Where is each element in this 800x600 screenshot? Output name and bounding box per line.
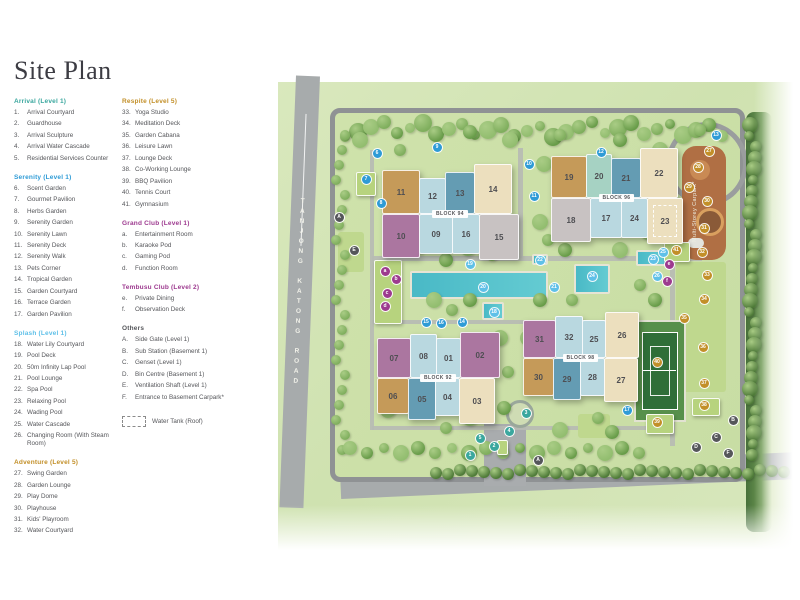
legend-item-label: Garden Pavilion (27, 311, 120, 319)
tree (493, 117, 509, 133)
map-marker-39: 39 (653, 418, 662, 427)
legend-item: C.Genset (Level 1) (122, 359, 250, 367)
block-wing-19: 19 (551, 156, 587, 198)
tree (447, 443, 457, 453)
tree (463, 125, 477, 139)
legend-item-label: Leisure Lawn (135, 143, 250, 151)
legend-section-title: Tembusu Club (Level 2) (122, 284, 250, 291)
legend-item-label: Serenity Deck (27, 242, 120, 250)
tree (393, 445, 409, 461)
legend-item-key: 19. (14, 352, 27, 360)
tree (562, 468, 574, 480)
legend-section-title: Grand Club (Level 1) (122, 220, 250, 227)
tree (566, 294, 578, 306)
legend-item-label: Wading Pool (27, 409, 120, 417)
legend-item-label: Pets Corner (27, 265, 120, 273)
legend-item-key: 9. (14, 219, 27, 227)
legend-item-key: 11. (14, 242, 27, 250)
tree (331, 295, 341, 305)
tree (334, 160, 344, 170)
legend-item-label: Relaxing Pool (27, 398, 120, 406)
tree (340, 250, 350, 260)
legend-item-key: 40. (122, 189, 135, 197)
block-wing-05: 05 (408, 378, 436, 420)
block-wing-20: 20 (586, 154, 612, 198)
tree (343, 441, 357, 455)
legend-section-title: Adventure (Level 5) (14, 459, 120, 466)
block-wing-06: 06 (377, 378, 409, 414)
block-wing-11: 11 (382, 170, 420, 214)
map-marker-30: 30 (703, 197, 712, 206)
legend-item-key: 12. (14, 253, 27, 261)
legend-item-label: Lounge Deck (135, 155, 250, 163)
tree (337, 145, 347, 155)
tree (340, 430, 350, 440)
tree (586, 465, 598, 477)
legend-item-key: 30. (14, 505, 27, 513)
legend-item-key: 41. (122, 201, 135, 209)
legend-section: Grand Club (Level 1)a.Entertainment Room… (122, 220, 250, 273)
legend-item: D.Bin Centre (Basement 1) (122, 371, 250, 379)
legend-item: 25.Water Cascade (14, 421, 120, 429)
map-marker-5: 5 (476, 434, 485, 443)
legend-item-key: 32. (14, 527, 27, 535)
legend-item-key: 24. (14, 409, 27, 417)
map-marker-17: 17 (623, 406, 632, 415)
tree (334, 220, 344, 230)
block-wing-29: 29 (553, 358, 581, 400)
block-label: BLOCK 98 (563, 354, 599, 362)
tree (536, 156, 552, 172)
legend-column-2: Respite (Level 5)33.Yoga Studio34.Medita… (122, 98, 250, 427)
map-marker-D: D (692, 443, 701, 452)
block-wing-27: 27 (604, 358, 638, 402)
legend-item-label: Residential Services Counter (27, 155, 120, 163)
tree (744, 395, 754, 405)
legend-item: 17.Garden Pavilion (14, 311, 120, 319)
legend-item: 19.Pool Deck (14, 352, 120, 360)
tree (535, 121, 545, 131)
tree (682, 468, 694, 480)
tree (340, 310, 350, 320)
road-tanjong-katong-label: TANJONG KATONG ROAD (292, 198, 306, 388)
tree (331, 235, 341, 245)
map-marker-C: C (712, 433, 721, 442)
tree (331, 355, 341, 365)
tree (552, 422, 568, 438)
legend-item-label: Ventilation Shaft (Level 1) (135, 382, 250, 390)
legend-item: e.Private Dining (122, 295, 250, 303)
legend-section: Arrival (Level 1)1.Arrival Courtyard2.Gu… (14, 98, 120, 163)
map-marker-A: A (335, 213, 344, 222)
block-wing-08: 08 (410, 334, 437, 378)
tree (646, 465, 658, 477)
tree (637, 127, 651, 141)
legend-item-label: Co-Working Lounge (135, 166, 250, 174)
legend-item: b.Karaoke Pod (122, 242, 250, 250)
block-wing-07: 07 (377, 338, 411, 378)
tree (340, 370, 350, 380)
legend-item: 5.Residential Services Counter (14, 155, 120, 163)
tree (748, 263, 758, 273)
legend-item-label: Water Lily Courtyard (27, 341, 120, 349)
legend-section: Adventure (Level 5)27.Swing Garden28.Gar… (14, 459, 120, 535)
legend-item-key: 26. (14, 432, 27, 448)
legend-item: 29.Play Dome (14, 493, 120, 501)
legend-item-label: Gaming Pod (135, 253, 250, 261)
legend-item-label: Gymnasium (135, 201, 250, 209)
legend-item-key: a. (122, 231, 135, 239)
legend-item-label: Gourmet Pavilion (27, 196, 120, 204)
legend-item-key: 1. (14, 109, 27, 117)
water-tank-note: Water Tank (Roof) (122, 416, 250, 427)
legend-item-key: 31. (14, 516, 27, 524)
legend-item-key: 8. (14, 208, 27, 216)
tree (670, 467, 682, 479)
legend-item-label: Swing Garden (27, 470, 120, 478)
legend-item-label: Playhouse (27, 505, 120, 513)
map-marker-7: 7 (362, 175, 371, 184)
map-marker-41: 41 (672, 246, 681, 255)
block-wing-23: 23 (647, 198, 683, 244)
legend-item-key: F. (122, 394, 135, 402)
legend-item: 10.Serenity Lawn (14, 231, 120, 239)
legend-item-key: C. (122, 359, 135, 367)
legend-item-key: B. (122, 348, 135, 356)
tree (334, 340, 344, 350)
tree (550, 467, 562, 479)
block-wing-22: 22 (640, 148, 678, 198)
tennis-court (634, 320, 686, 422)
legend-item-key: 13. (14, 265, 27, 273)
legend-item-key: b. (122, 242, 135, 250)
tree (502, 366, 514, 378)
legend-item-key: f. (122, 306, 135, 314)
tree (478, 466, 490, 478)
block-wing-17: 17 (590, 198, 622, 238)
map-marker-35: 35 (680, 314, 689, 323)
legend-section: Tembusu Club (Level 2)e.Private Diningf.… (122, 284, 250, 314)
legend-item: 3.Arrival Sculpture (14, 132, 120, 140)
tree (442, 122, 456, 136)
block-label: BLOCK 94 (432, 210, 468, 218)
legend-item-label: Terrace Garden (27, 299, 120, 307)
legend-item-key: 35. (122, 132, 135, 140)
map-marker-11: 11 (530, 192, 539, 201)
tree (446, 304, 458, 316)
tree (634, 279, 646, 291)
road-tanjong-katong: TANJONG KATONG ROAD (279, 76, 320, 509)
legend-item: 26.Changing Room (With Steam Room) (14, 432, 120, 448)
legend-item-label: Side Gate (Level 1) (135, 336, 250, 344)
legend-item: 31.Kids' Playroom (14, 516, 120, 524)
legend-item-key: e. (122, 295, 135, 303)
tree (744, 307, 754, 317)
building-cluster: 3132252630292827BLOCK 98 (523, 312, 638, 402)
map-marker-e: e (665, 260, 674, 269)
tennis-court-lines (650, 346, 670, 396)
site-plan-page: Site Plan Arrival (Level 1)1.Arrival Cou… (0, 0, 800, 600)
legend-item-key: 16. (14, 299, 27, 307)
building-cluster: 0708010206050403BLOCK 92 (377, 332, 499, 424)
legend-item: B.Sub Station (Basement 1) (122, 348, 250, 356)
tree (718, 466, 730, 478)
map-marker-10: 10 (525, 160, 534, 169)
page-title: Site Plan (14, 56, 112, 86)
map-marker-13: 13 (712, 131, 721, 140)
tree (497, 401, 511, 415)
map-marker-24: 24 (588, 272, 597, 281)
tree (490, 467, 502, 479)
legend-item-key: 37. (122, 155, 135, 163)
tree (337, 385, 347, 395)
map-marker-31: 31 (700, 224, 709, 233)
tree (547, 441, 561, 455)
tree (651, 123, 663, 135)
legend-item-label: Observation Deck (135, 306, 250, 314)
legend-item: 39.BBQ Pavilion (122, 178, 250, 186)
legend-item: 34.Meditation Deck (122, 120, 250, 128)
block-wing-18: 18 (551, 198, 591, 242)
map-marker-2: 2 (490, 442, 499, 451)
legend-item-key: 23. (14, 398, 27, 406)
tree (340, 190, 350, 200)
legend-item-label: Water Courtyard (27, 527, 120, 535)
tree (538, 466, 550, 478)
map-marker-38: 38 (700, 401, 709, 410)
legend-section: Serenity (Level 1)6.Scent Garden7.Gourme… (14, 174, 120, 319)
block-wing-32: 32 (555, 316, 583, 358)
legend-item: E.Ventilation Shaft (Level 1) (122, 382, 250, 390)
legend-item-label: Guardhouse (27, 120, 120, 128)
legend-item: 33.Yoga Studio (122, 109, 250, 117)
legend-item-label: Arrival Water Cascade (27, 143, 120, 151)
water-tank-outline (653, 205, 677, 237)
legend-item: 24.Wading Pool (14, 409, 120, 417)
site-plan-map: TANJONG KATONG ROAD JALAN TEMBUSU (278, 82, 800, 560)
map-marker-F: F (724, 449, 733, 458)
block-wing-12: 12 (419, 178, 446, 214)
legend-item: 14.Tropical Garden (14, 276, 120, 284)
legend-item: d.Function Room (122, 265, 250, 273)
legend-item: 13.Pets Corner (14, 265, 120, 273)
tree (337, 325, 347, 335)
tree (574, 464, 586, 476)
map-marker-c: c (383, 289, 392, 298)
legend-section: OthersA.Side Gate (Level 1)B.Sub Station… (122, 325, 250, 401)
legend-item-label: Karaoke Pod (135, 242, 250, 250)
legend-item: 22.Spa Pool (14, 386, 120, 394)
legend-item-label: Arrival Sculpture (27, 132, 120, 140)
legend-item-key: E. (122, 382, 135, 390)
legend-item-label: Bin Centre (Basement 1) (135, 371, 250, 379)
map-marker-4: 4 (505, 427, 514, 436)
map-marker-14: 14 (458, 318, 467, 327)
tree (748, 439, 758, 449)
legend-column-1: Arrival (Level 1)1.Arrival Courtyard2.Gu… (14, 98, 120, 546)
legend-item-key: A. (122, 336, 135, 344)
legend-item: 41.Gymnasium (122, 201, 250, 209)
legend-item-label: Entrance to Basement Carpark* (135, 394, 250, 402)
tree (558, 243, 572, 257)
edge-fade-bottom (278, 505, 800, 561)
map-marker-36: 36 (699, 343, 708, 352)
tree (610, 467, 622, 479)
map-marker-32: 32 (698, 248, 707, 257)
tree (754, 464, 766, 476)
tree (352, 132, 368, 148)
building-cluster: 1112131410091615BLOCK 94 (382, 164, 518, 260)
legend-item: f.Observation Deck (122, 306, 250, 314)
tree (586, 116, 598, 128)
legend-item-label: Sub Station (Basement 1) (135, 348, 250, 356)
map-marker-26: 26 (653, 272, 662, 281)
block-wing-25: 25 (582, 320, 606, 358)
legend-section-title: Arrival (Level 1) (14, 98, 120, 105)
tree (391, 127, 403, 139)
map-marker-12: 12 (597, 148, 606, 157)
tree (748, 175, 758, 185)
map-marker-19: 19 (466, 260, 475, 269)
tree (394, 144, 406, 156)
tree (746, 449, 758, 461)
block-wing-31: 31 (523, 320, 556, 358)
block-wing-24: 24 (621, 198, 648, 238)
legend-item-label: 50m Infinity Lap Pool (27, 364, 120, 372)
legend-item: c.Gaming Pod (122, 253, 250, 261)
legend-item-label: Private Dining (135, 295, 250, 303)
tree (466, 465, 478, 477)
legend-item: 40.Tennis Court (122, 189, 250, 197)
legend-item-label: Function Room (135, 265, 250, 273)
map-marker-34: 34 (700, 295, 709, 304)
map-marker-9: 9 (433, 143, 442, 152)
legend-item: 8.Herbs Garden (14, 208, 120, 216)
legend-item-key: 3. (14, 132, 27, 140)
tree (521, 125, 533, 137)
tree (730, 467, 742, 479)
tree (377, 115, 391, 129)
legend-item: 16.Terrace Garden (14, 299, 120, 307)
tree (615, 441, 629, 455)
tree (622, 468, 634, 480)
legend-item-key: 39. (122, 178, 135, 186)
legend-item: 38.Co-Working Lounge (122, 166, 250, 174)
legend-item: 32.Water Courtyard (14, 527, 120, 535)
legend-item: 9.Serenity Garden (14, 219, 120, 227)
tree (411, 441, 425, 455)
tree (694, 464, 706, 476)
map-marker-8: 8 (377, 199, 386, 208)
tree (744, 219, 754, 229)
legend-item: 12.Serenity Walk (14, 253, 120, 261)
tree (340, 130, 350, 140)
legend-item-key: 17. (14, 311, 27, 319)
map-marker-18: 18 (490, 308, 499, 317)
legend-item-label: Garden Lounge (27, 482, 120, 490)
legend-item-label: Tropical Garden (27, 276, 120, 284)
tree (334, 280, 344, 290)
legend-item-key: 28. (14, 482, 27, 490)
water-tank-label: Water Tank (Roof) (152, 418, 203, 425)
block-wing-16: 16 (452, 214, 480, 254)
legend-item: 36.Leisure Lawn (122, 143, 250, 151)
legend-item-key: 18. (14, 341, 27, 349)
legend-item: 21.Pool Lounge (14, 375, 120, 383)
legend-section-title: Others (122, 325, 250, 332)
map-marker-28: 28 (694, 163, 703, 172)
legend-item-key: 6. (14, 185, 27, 193)
legend-item: 2.Guardhouse (14, 120, 120, 128)
tree (658, 466, 670, 478)
block-label: BLOCK 92 (420, 374, 456, 382)
tree (334, 400, 344, 410)
tree (533, 293, 547, 307)
tree (426, 292, 442, 308)
tree (502, 132, 518, 148)
block-wing-09: 09 (419, 214, 453, 254)
block-wing-01: 01 (436, 338, 461, 378)
tree (379, 443, 389, 453)
legend-item-key: 21. (14, 375, 27, 383)
legend-item: A.Side Gate (Level 1) (122, 336, 250, 344)
legend-item: 15.Garden Courtyard (14, 288, 120, 296)
swing-garden (696, 208, 724, 236)
legend-item-key: 10. (14, 231, 27, 239)
map-marker-23: 23 (649, 255, 658, 264)
legend-item-label: Tennis Court (135, 189, 250, 197)
map-marker-d: d (381, 302, 390, 311)
block-wing-10: 10 (382, 214, 420, 258)
legend-item-label: Entertainment Room (135, 231, 250, 239)
legend-item-label: Scent Garden (27, 185, 120, 193)
tree (592, 412, 604, 424)
legend-item-key: 27. (14, 470, 27, 478)
legend-item: 11.Serenity Deck (14, 242, 120, 250)
map-marker-22: 22 (536, 256, 545, 265)
tree (331, 175, 341, 185)
tree (598, 466, 610, 478)
tree (583, 443, 593, 453)
tree (532, 214, 548, 230)
legend-item-label: Serenity Walk (27, 253, 120, 261)
map-marker-27: 27 (705, 147, 714, 156)
block-label: BLOCK 96 (599, 194, 635, 202)
tree (554, 129, 566, 141)
block-wing-14: 14 (474, 164, 512, 214)
tree (706, 465, 718, 477)
legend-item-key: 22. (14, 386, 27, 394)
legend-item-key: 34. (122, 120, 135, 128)
legend-section-title: Serenity (Level 1) (14, 174, 120, 181)
legend-item-label: Pool Deck (27, 352, 120, 360)
legend-item-label: BBQ Pavilion (135, 178, 250, 186)
map-marker-B: B (729, 416, 738, 425)
legend-item: 1.Arrival Courtyard (14, 109, 120, 117)
map-marker-29: 29 (685, 183, 694, 192)
legend-item: 35.Garden Cabana (122, 132, 250, 140)
tree (337, 265, 347, 275)
map-marker-37: 37 (700, 379, 709, 388)
tree (742, 468, 754, 480)
legend-item-label: Changing Room (With Steam Room) (27, 432, 120, 448)
map-marker-21: 21 (550, 283, 559, 292)
legend-item-label: Arrival Courtyard (27, 109, 120, 117)
legend-item: 4.Arrival Water Cascade (14, 143, 120, 151)
map-marker-b: b (392, 275, 401, 284)
legend-section: Splash (Level 1)18.Water Lily Courtyard1… (14, 330, 120, 449)
map-marker-6: 6 (373, 149, 382, 158)
